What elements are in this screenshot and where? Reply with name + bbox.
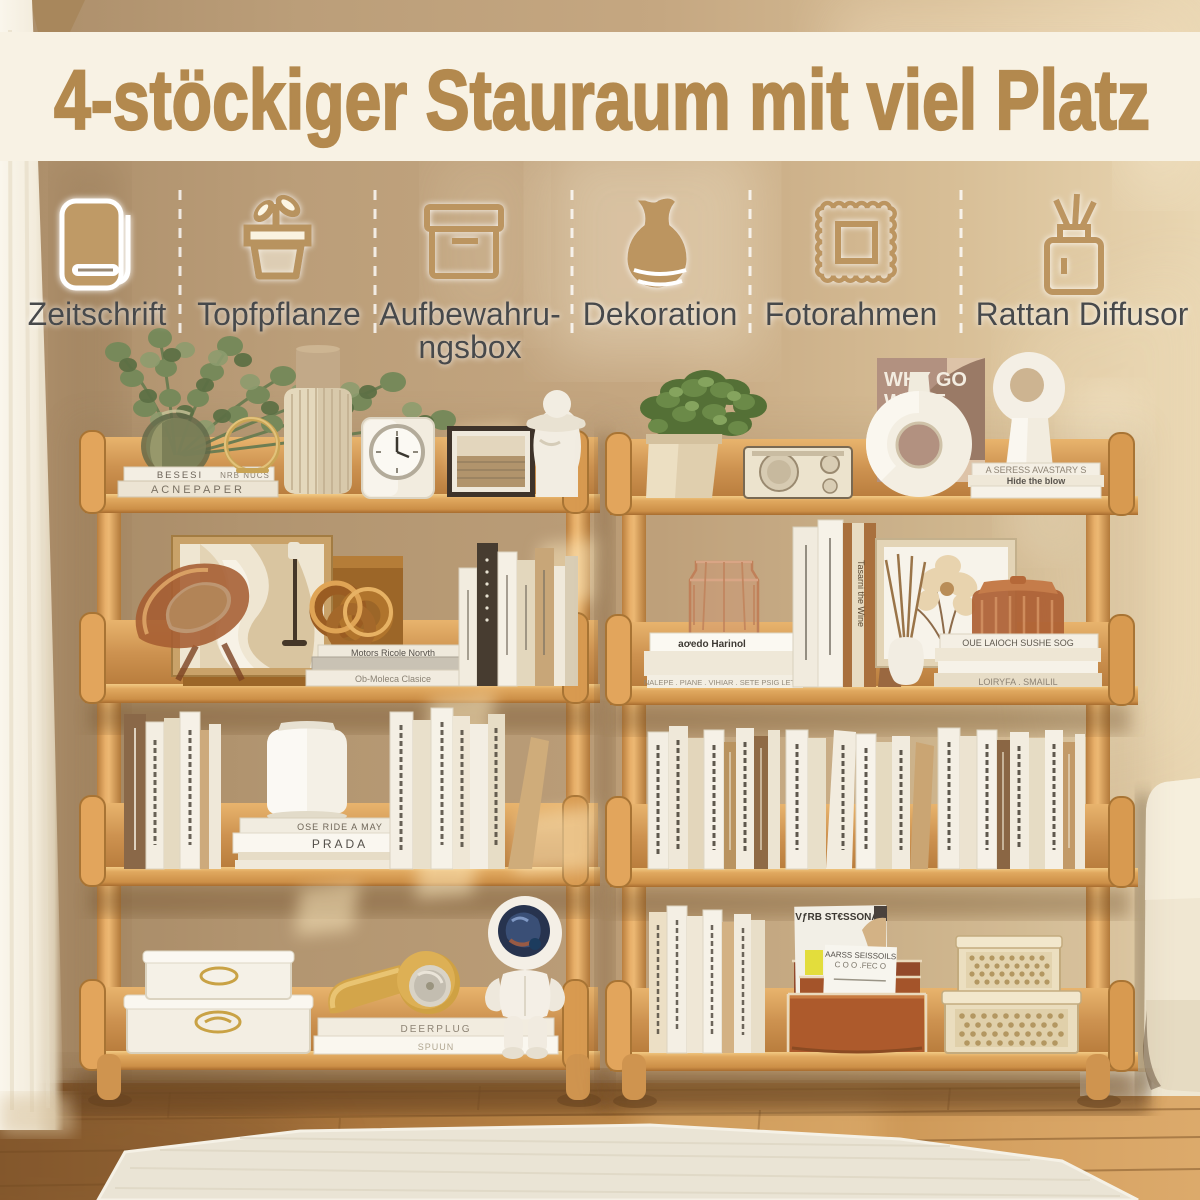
svg-text:PRADA: PRADA [312,837,368,851]
svg-text:Aufbewahru-: Aufbewahru- [379,296,560,332]
svg-text:Ob-Moleca Clasice: Ob-Moleca Clasice [355,674,431,684]
svg-text:OUE LAIOCH SUSHE SOG: OUE LAIOCH SUSHE SOG [962,638,1074,648]
svg-text:Rattan Diffusor: Rattan Diffusor [976,296,1189,332]
svg-text:Motors Ricole Norvth: Motors Ricole Norvth [351,648,435,658]
svg-text:Fotorahmen: Fotorahmen [765,296,938,332]
svg-text:DEERPLUG: DEERPLUG [400,1024,471,1035]
svg-text:LOIRYFA . SMAILIL: LOIRYFA . SMAILIL [978,677,1057,687]
svg-text:BESESI: BESESI [157,470,203,481]
svg-text:ngsbox: ngsbox [418,329,521,365]
svg-text:OSE RIDE A MAY: OSE RIDE A MAY [297,822,383,832]
svg-text:aơedo Harinol: aơedo Harinol [678,639,746,650]
svg-text:SPUUN: SPUUN [418,1042,455,1052]
svg-text:Dekoration: Dekoration [583,296,738,332]
svg-text:NALEPE . PIANE . VIHIAR . SETE: NALEPE . PIANE . VIHIAR . SETE PSIG LETS [644,678,800,687]
svg-text:Topfpflanze: Topfpflanze [197,296,361,332]
svg-text:Hide the blow: Hide the blow [1007,476,1066,486]
svg-text:ACNEPAPER: ACNEPAPER [151,484,245,496]
svg-text:4-stöckiger Stauraum mit viel: 4-stöckiger Stauraum mit viel Platz [54,53,1150,147]
svg-text:C O O .FEC O: C O O .FEC O [834,960,886,971]
svg-text:Tasarni the Wine: Tasarni the Wine [856,560,866,627]
svg-text:A SERESS AVASTARY S: A SERESS AVASTARY S [986,465,1087,475]
svg-text:Zeitschrift: Zeitschrift [28,296,167,332]
